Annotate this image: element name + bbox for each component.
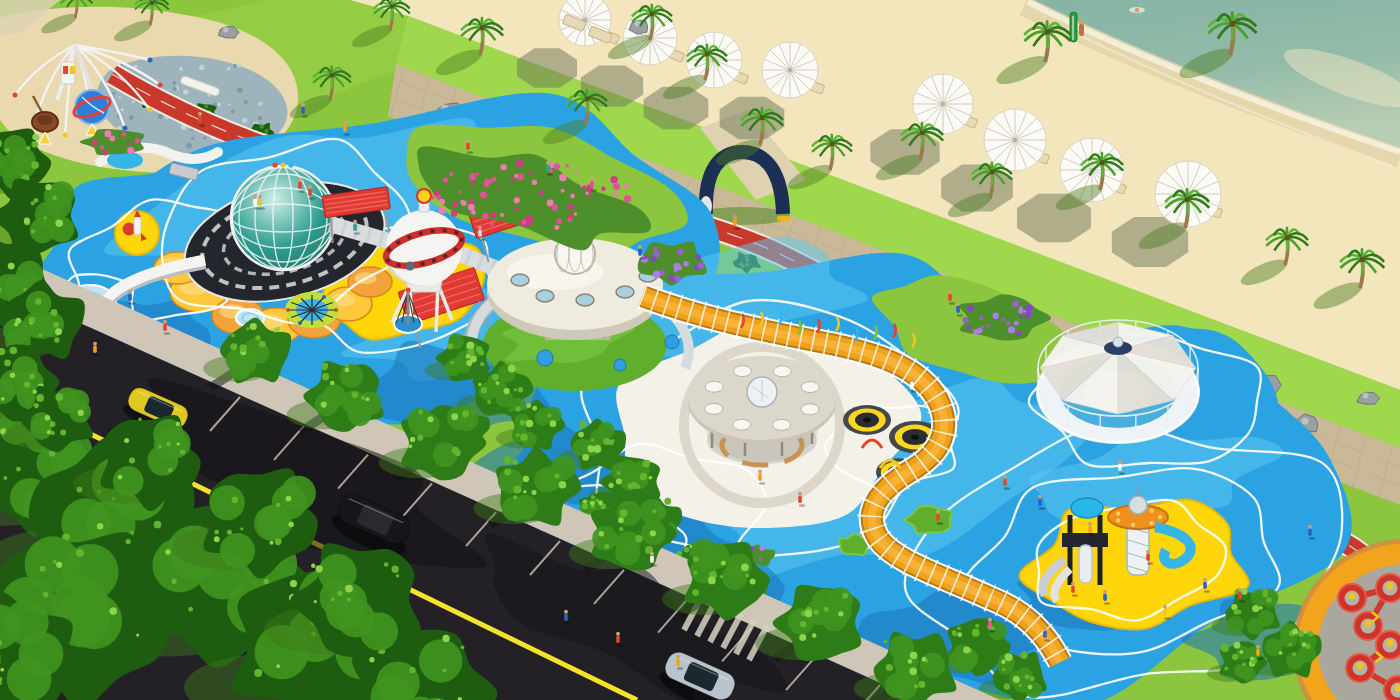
leaf-speckle — [515, 406, 521, 412]
windsurfer-head — [1079, 20, 1084, 25]
leaf-speckle — [478, 383, 481, 386]
pebble — [237, 87, 243, 93]
visitor-body — [616, 636, 620, 644]
flower-bloom — [650, 256, 656, 262]
leaf-speckle — [29, 317, 35, 323]
leaf-speckle — [31, 161, 39, 169]
flower-bloom — [451, 210, 458, 217]
visitor-head — [301, 103, 305, 107]
pebble — [173, 81, 177, 85]
visitor-shadow — [734, 227, 740, 230]
visitor-shadow — [354, 232, 360, 235]
visitor-head — [298, 178, 302, 182]
leaf-speckle — [322, 363, 328, 369]
dome-finial-ball — [272, 162, 277, 167]
visitor-body — [936, 514, 940, 522]
canopy-skylight — [801, 382, 819, 393]
leaf-speckle — [31, 141, 38, 148]
palm-crown — [585, 97, 590, 102]
flower-bloom — [1008, 326, 1015, 333]
pebble — [132, 100, 135, 103]
flower-bloom — [674, 269, 677, 272]
palm-crown — [480, 25, 485, 30]
visitor-head — [936, 510, 940, 514]
leaf-speckle — [138, 418, 141, 421]
cone-top-ball — [406, 288, 411, 293]
web-ball — [334, 308, 338, 312]
leaf-speckle — [1250, 657, 1254, 661]
leaf-speckle — [290, 580, 297, 587]
pebble — [191, 137, 194, 140]
leaf-speckle — [721, 561, 726, 566]
flower-bloom — [559, 174, 566, 181]
flower-bloom — [471, 210, 476, 215]
leaf-speckle — [532, 490, 537, 495]
leaf-speckle — [410, 437, 415, 442]
flower-bloom — [492, 176, 497, 181]
visitor-shadow — [344, 133, 350, 136]
leaf-speckle — [590, 501, 595, 506]
flower-bloom — [92, 140, 98, 146]
spring-rider — [1387, 640, 1394, 647]
palm-crown — [390, 4, 394, 8]
pebble — [229, 103, 231, 105]
visitor-shadow — [94, 354, 100, 357]
flower-bloom — [443, 178, 449, 184]
visitor-body — [1238, 592, 1242, 600]
leaf-speckle — [648, 476, 652, 480]
leaf-speckle — [345, 368, 350, 373]
shrub-leaf — [260, 124, 264, 128]
canopy-clump — [415, 412, 440, 437]
leaf-speckle — [812, 633, 817, 638]
flower-bloom — [497, 185, 500, 188]
visitor-body — [93, 346, 97, 354]
visitor-head — [650, 552, 654, 556]
visitor-head — [638, 245, 642, 249]
leaf-speckle — [628, 483, 634, 489]
visitor-head — [1256, 645, 1260, 649]
leaf-speckle — [154, 521, 162, 529]
leaf-speckle — [708, 577, 716, 585]
flower-bloom — [556, 218, 562, 224]
leaf-speckle — [23, 288, 26, 291]
leaf-speckle — [56, 562, 62, 568]
visitor-body — [163, 324, 167, 332]
leaf-speckle — [180, 449, 185, 454]
leaf-speckle — [1019, 684, 1022, 687]
visitor-shadow — [199, 124, 205, 127]
leaf-speckle — [909, 667, 917, 675]
leaf-speckle — [842, 593, 848, 599]
flower-bloom — [585, 192, 589, 196]
ring-dot — [1116, 518, 1120, 522]
leaf-speckle — [462, 410, 469, 417]
leaf-speckle — [583, 500, 587, 504]
leaf-speckle — [512, 459, 518, 465]
leaf-speckle — [635, 535, 643, 543]
visitor-shadow — [1104, 602, 1110, 605]
canopy-skylight — [773, 419, 791, 430]
flower-bloom — [100, 145, 105, 150]
umbrella-hub — [1013, 138, 1017, 142]
pebble — [242, 118, 247, 123]
canopy-clump — [892, 675, 917, 700]
leaf-speckle — [1297, 631, 1304, 638]
leaf-speckle — [417, 435, 423, 441]
canopy-clump — [210, 485, 245, 520]
leaf-speckle — [1292, 652, 1296, 656]
visitor-body — [308, 189, 312, 197]
flower-bloom — [515, 206, 519, 210]
leaf-speckle — [43, 592, 49, 598]
leaf-speckle — [286, 496, 292, 502]
flower-bloom — [491, 212, 496, 217]
leaf-speckle — [963, 647, 970, 654]
flower-bloom — [471, 181, 475, 185]
visitor-body — [564, 614, 568, 622]
canopy-clump — [433, 442, 458, 467]
canopy-clump — [62, 544, 118, 600]
leaf-speckle — [455, 450, 461, 456]
rock-highlight — [1301, 417, 1308, 424]
leaf-speckle — [24, 381, 30, 387]
visitor-shadow — [1164, 617, 1170, 620]
leaf-speckle — [720, 575, 724, 579]
visitor-shadow — [129, 302, 135, 305]
leaf-speckle — [51, 431, 55, 435]
canopy-skylight — [733, 419, 751, 430]
visitor-body — [1203, 582, 1207, 590]
flower-bloom — [127, 142, 131, 146]
flower-bloom — [668, 275, 675, 282]
leaf-speckle — [480, 362, 484, 366]
palm-crown — [920, 130, 925, 135]
visitor-shadow — [164, 332, 170, 335]
leaf-speckle — [322, 373, 329, 380]
leaf-speckle — [496, 381, 500, 385]
visitor-head — [590, 177, 594, 181]
inground-trampoline — [843, 405, 891, 435]
visitor-body — [546, 165, 550, 173]
dome-finial-ball — [280, 162, 285, 167]
visitor-head — [1088, 522, 1092, 526]
leaf-speckle — [799, 634, 806, 641]
visitor-shadow — [1004, 487, 1010, 490]
leaf-speckle — [124, 438, 129, 443]
flower-bloom — [1016, 331, 1021, 336]
leaf-speckle — [230, 343, 237, 350]
visitor-head — [1308, 525, 1312, 529]
play-ball — [614, 359, 626, 371]
leaf-speckle — [231, 333, 235, 337]
pebble — [158, 114, 163, 119]
canopy-clump — [340, 364, 364, 388]
leaf-speckle — [598, 500, 603, 505]
flower-bloom — [552, 204, 558, 210]
visitor-body — [590, 181, 594, 189]
leaf-speckle — [35, 298, 41, 304]
visitor-shadow — [467, 151, 473, 154]
visitor-head — [128, 290, 132, 294]
visitor-head — [1043, 627, 1047, 631]
mat-center — [863, 418, 871, 423]
pebble — [183, 89, 188, 94]
leaf-speckle — [158, 445, 162, 449]
palm-crown — [330, 73, 335, 78]
leaf-speckle — [914, 684, 918, 688]
visitor-shadow — [1147, 562, 1153, 565]
leaf-speckle — [578, 432, 584, 438]
visitor-shadow — [1239, 600, 1245, 603]
leaf-speckle — [384, 562, 389, 567]
leaf-speckle — [642, 460, 649, 467]
leaf-speckle — [504, 468, 511, 475]
leaf-speckle — [311, 563, 316, 568]
flower-bloom — [517, 174, 524, 181]
visitor-shadow — [957, 314, 963, 317]
leaf-speckle — [813, 609, 818, 614]
flower-bloom — [514, 197, 520, 203]
leaf-speckle — [331, 597, 335, 601]
canopy-clump — [640, 499, 665, 524]
flower-bloom — [654, 251, 660, 257]
leaf-speckle — [910, 652, 918, 660]
umbrella-shadow — [517, 48, 577, 87]
leaf-speckle — [1005, 653, 1013, 661]
leaf-speckle — [442, 669, 446, 673]
nose-beacon — [417, 189, 431, 203]
visitor-head — [1118, 460, 1122, 464]
pebble — [120, 108, 124, 112]
visitor-body — [1088, 526, 1092, 534]
basket-hollow — [37, 115, 53, 125]
leaf-speckle — [1242, 663, 1246, 667]
rope-anchor — [148, 108, 153, 113]
flower-bloom — [489, 221, 493, 225]
palm-crown — [150, 1, 154, 5]
palm-crown — [760, 115, 765, 120]
leaf-speckle — [594, 445, 602, 453]
leaf-speckle — [352, 391, 359, 398]
leaf-speckle — [330, 381, 335, 386]
visitor-body — [478, 230, 482, 238]
canopy-clump — [1234, 664, 1248, 678]
leaf-speckle — [513, 486, 521, 494]
leaf-speckle — [664, 498, 671, 505]
visitor-head — [93, 342, 97, 346]
leaf-speckle — [165, 549, 170, 554]
leaf-speckle — [275, 538, 282, 545]
leaf-speckle — [1234, 590, 1238, 594]
visitor-body — [343, 125, 347, 133]
palm-crown — [650, 12, 655, 17]
visitor-body — [301, 107, 305, 115]
platform-panel — [70, 66, 75, 74]
leaf-speckle — [442, 635, 449, 642]
leaf-speckle — [345, 585, 353, 593]
flower-bloom — [568, 214, 573, 219]
canopy-clump — [257, 505, 292, 540]
visitor-body — [910, 382, 914, 390]
leaf-speckle — [617, 471, 621, 475]
flower-bloom — [500, 164, 506, 170]
visitor-shadow — [479, 238, 485, 241]
pebble — [112, 91, 115, 94]
flower-bloom — [532, 180, 537, 185]
leaf-speckle — [239, 344, 247, 352]
leaf-speckle — [168, 468, 173, 473]
visitor-body — [128, 294, 132, 302]
leaf-speckle — [347, 597, 351, 601]
platform-panel — [63, 66, 68, 74]
leaf-speckle — [504, 456, 512, 464]
flower-bloom — [675, 276, 681, 282]
visitor-shadow — [565, 622, 571, 625]
visitor-body — [1163, 609, 1167, 617]
leaf-speckle — [97, 523, 103, 529]
leaf-speckle — [800, 621, 806, 627]
flower-bloom — [539, 190, 544, 195]
canopy-skylight — [705, 381, 723, 392]
leaf-speckle — [418, 410, 423, 415]
leaf-speckle — [409, 667, 415, 673]
windsurfer-body — [1079, 24, 1084, 36]
leaf-speckle — [595, 498, 599, 502]
leaf-speckle — [838, 611, 843, 616]
leaf-speckle — [1234, 642, 1241, 649]
leaf-speckle — [118, 475, 123, 480]
glass-spinner-pavilion — [1036, 320, 1200, 444]
roof-porthole — [511, 274, 529, 286]
visitor-shadow — [677, 667, 683, 670]
pebble — [186, 143, 192, 149]
leaf-speckle — [907, 659, 912, 664]
leaf-speckle — [55, 393, 63, 401]
umbrella-hub — [941, 102, 945, 106]
leaf-speckle — [470, 356, 477, 363]
leaf-speckle — [1288, 643, 1292, 647]
leaf-speckle — [4, 148, 9, 153]
leaf-speckle — [513, 495, 517, 499]
flower-bloom — [698, 262, 705, 269]
visitor-body — [253, 199, 257, 207]
leaf-speckle — [8, 263, 15, 270]
leaf-speckle — [693, 556, 699, 562]
pebble — [258, 116, 262, 120]
flower-bloom — [516, 160, 523, 167]
park-aerial-render — [0, 0, 1400, 700]
leaf-speckle — [214, 530, 219, 535]
visitor-shadow — [254, 207, 260, 210]
flower-bloom — [759, 546, 764, 551]
leaf-speckle — [652, 509, 656, 513]
ring-dot — [1158, 515, 1162, 519]
canopy-clump — [147, 445, 178, 476]
leaf-speckle — [52, 195, 57, 200]
cap-dome — [1113, 337, 1123, 347]
leaf-speckle — [3, 476, 7, 480]
ring-dot — [1131, 523, 1135, 527]
flower-bloom — [1025, 304, 1032, 311]
flower-bloom — [993, 313, 999, 319]
leaf-speckle — [957, 626, 961, 630]
visitor-shadow — [949, 302, 955, 305]
canopy-clump — [19, 632, 64, 677]
leaf-speckle — [130, 531, 133, 534]
visitor-body — [956, 306, 960, 314]
leaf-speckle — [45, 415, 51, 421]
leaf-speckle — [1252, 605, 1259, 612]
visitor-head — [253, 195, 257, 199]
leaf-speckle — [1232, 654, 1238, 660]
canopy-skylight — [801, 404, 819, 415]
visitor-body — [1146, 554, 1150, 562]
leaf-speckle — [315, 565, 322, 572]
visitor-shadow — [1309, 537, 1315, 540]
flower-bloom — [480, 192, 487, 199]
pebble — [173, 87, 177, 91]
visitor-head — [1203, 578, 1207, 582]
spring-rider — [1387, 583, 1394, 590]
palm-crown — [1230, 21, 1236, 27]
rope-anchor — [13, 93, 18, 98]
leaf-speckle — [0, 668, 4, 672]
web-ball — [298, 295, 302, 299]
canopy-clump — [220, 533, 255, 568]
pebble — [237, 63, 241, 67]
canopy-clump — [535, 410, 551, 426]
leaf-speckle — [129, 458, 135, 464]
penguin-foot — [777, 216, 790, 221]
visitor-body — [258, 199, 262, 207]
leaf-speckle — [579, 421, 587, 429]
leaf-speckle — [1224, 666, 1228, 670]
visitor-shadow — [1044, 639, 1050, 642]
pebble — [217, 102, 221, 106]
palm-crown — [830, 142, 835, 147]
leaf-speckle — [1302, 642, 1307, 647]
visitor-body — [198, 116, 202, 124]
flower-bloom — [1019, 307, 1023, 311]
leaf-speckle — [508, 365, 516, 373]
flower-bloom — [127, 147, 134, 154]
globe-climber — [75, 90, 109, 124]
web-ball — [322, 295, 326, 299]
flower-bloom — [500, 213, 504, 217]
leaf-speckle — [514, 388, 517, 391]
spring-rider — [1349, 593, 1356, 600]
leaf-speckle — [750, 578, 756, 584]
visitor-shadow — [302, 115, 308, 118]
leaf-speckle — [451, 413, 458, 420]
leaf-speckle — [45, 184, 51, 190]
umbrella-hub — [788, 68, 792, 72]
palm-crown — [1100, 160, 1105, 165]
canopy-clump — [697, 543, 723, 569]
flower-bloom — [449, 172, 453, 176]
leaf-speckle — [276, 664, 280, 668]
leaf-speckle — [692, 589, 699, 596]
visitor-head — [198, 112, 202, 116]
mat-center — [911, 434, 919, 439]
visitor-head — [1146, 550, 1150, 554]
leaf-speckle — [408, 444, 412, 448]
leaf-speckle — [918, 681, 925, 688]
leaf-speckle — [10, 347, 18, 355]
visitor-body — [1308, 529, 1312, 537]
leaf-speckle — [346, 364, 349, 367]
